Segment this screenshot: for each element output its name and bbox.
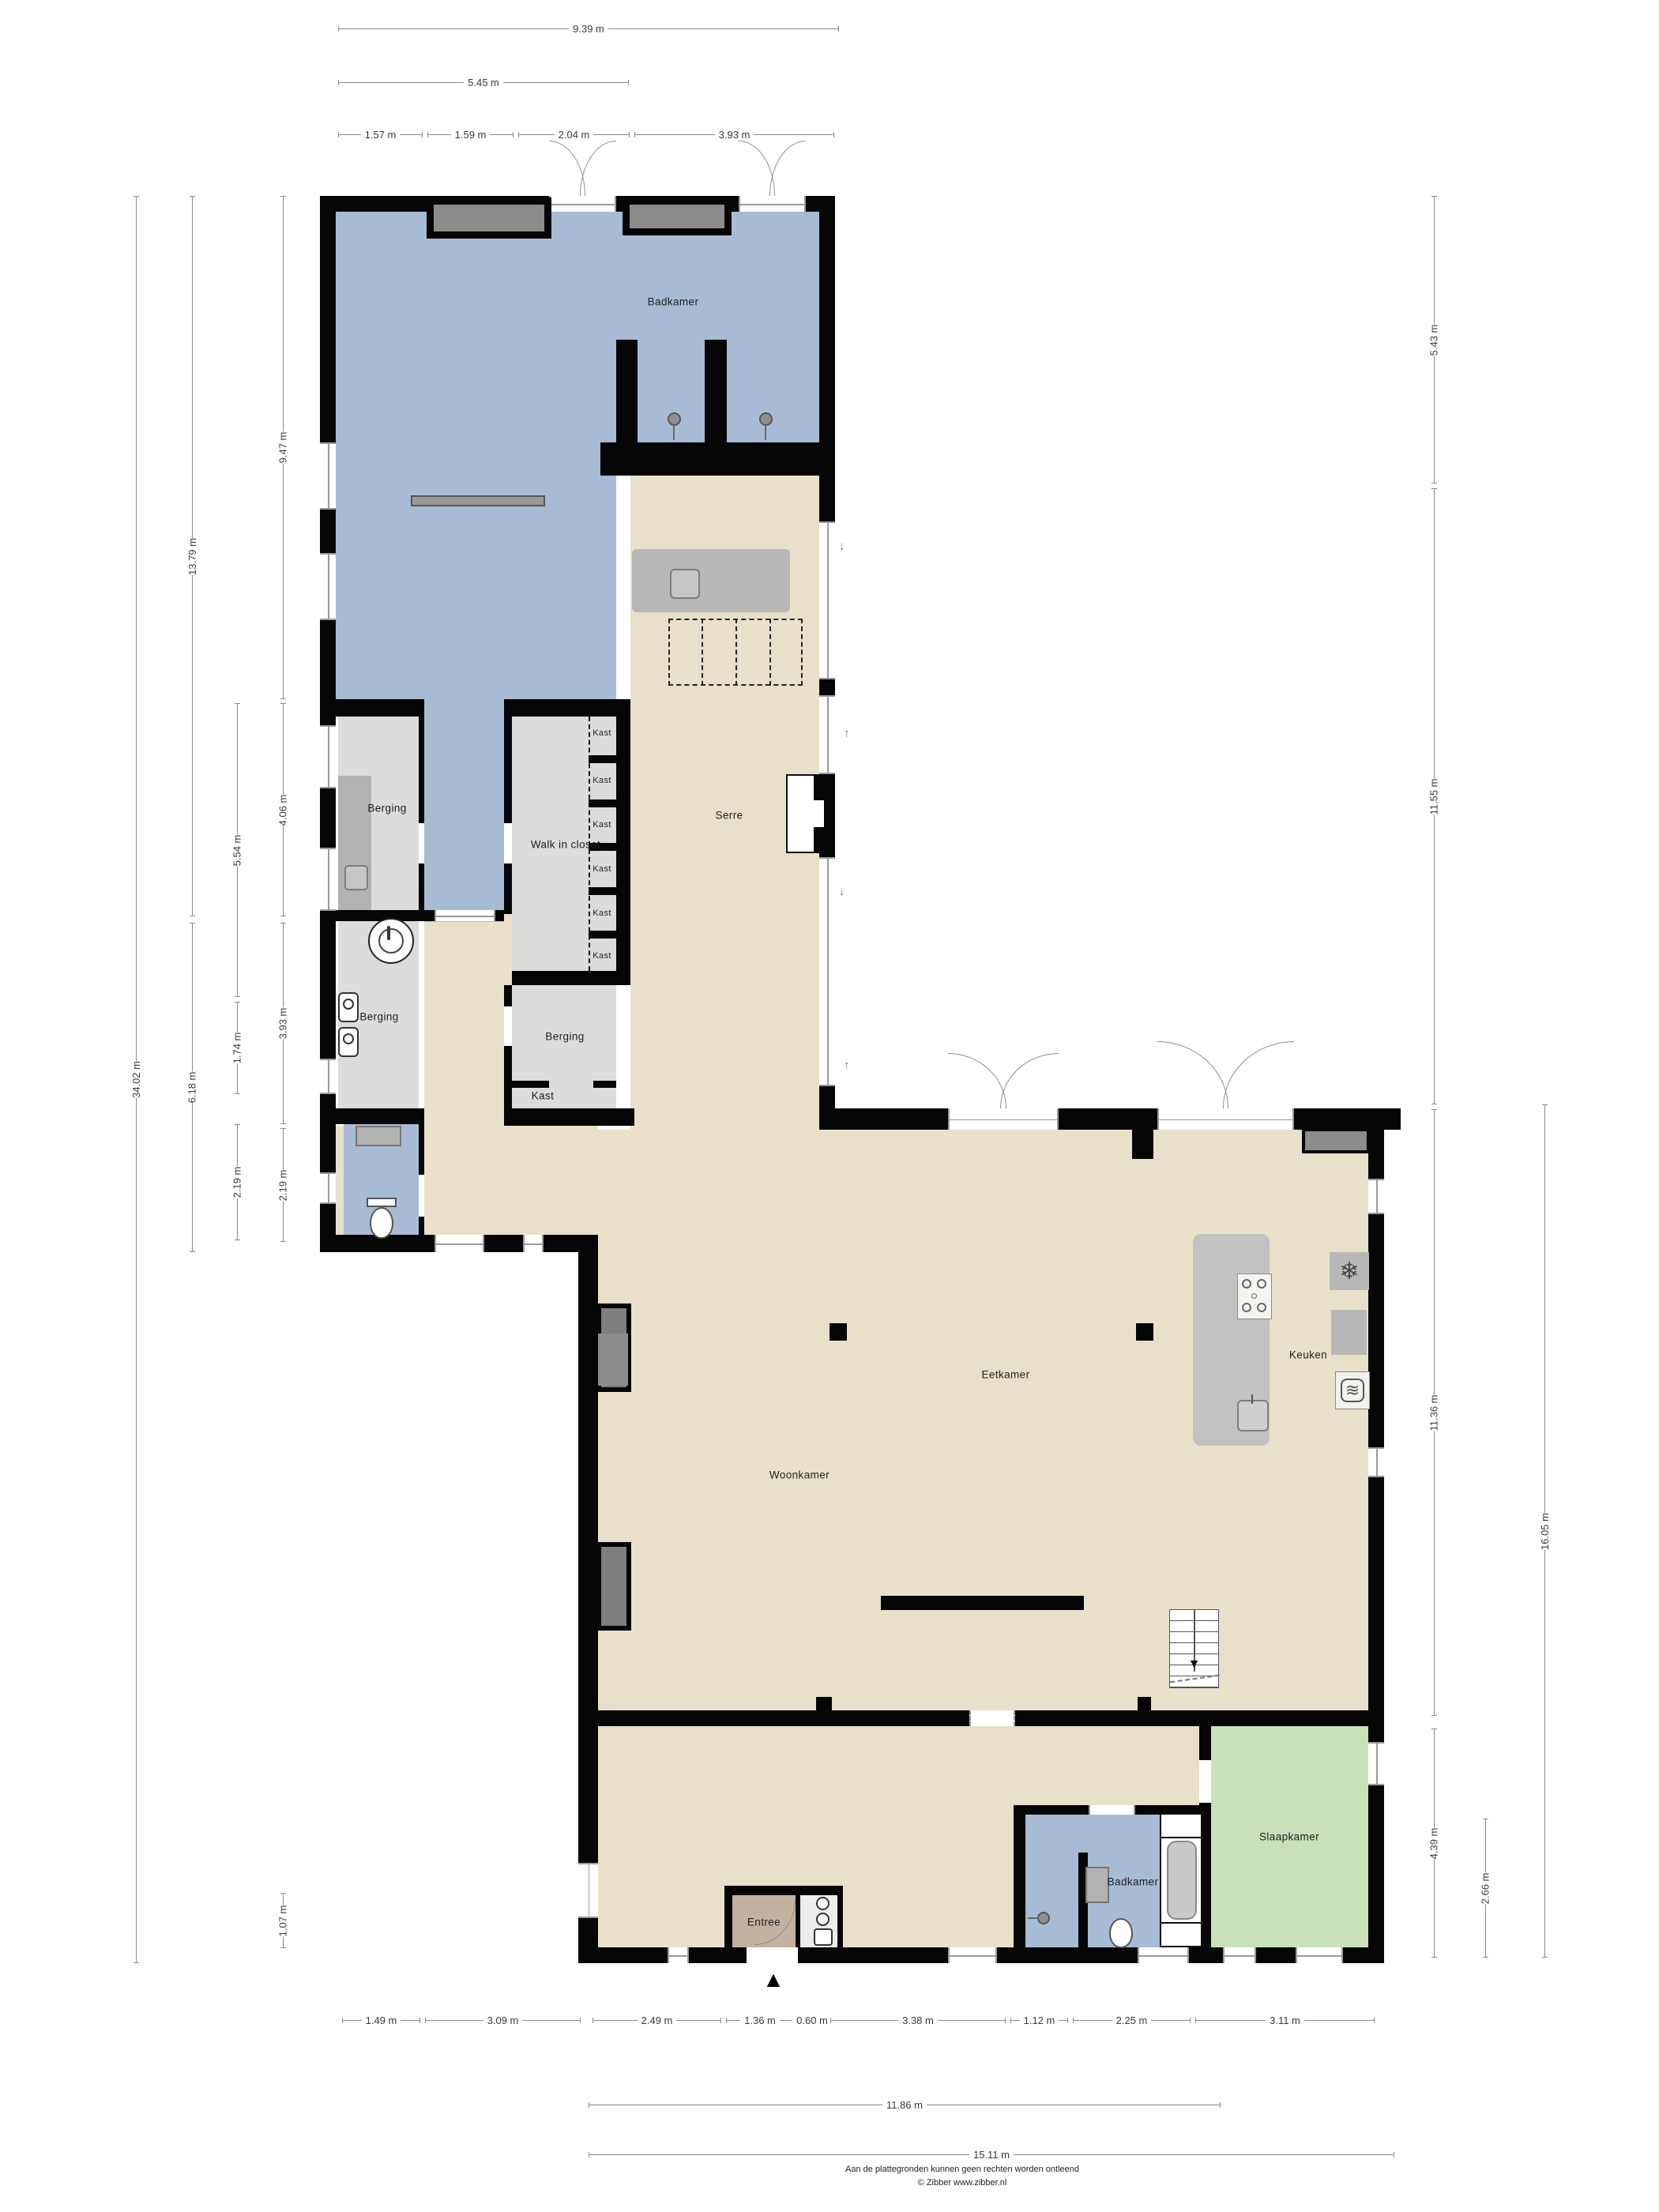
dimension-left: 1.74 m	[230, 1002, 244, 1094]
wall	[798, 1947, 948, 1963]
floor-badkamer-boven-b	[336, 449, 616, 701]
window-arrow-icon: ↑	[844, 727, 850, 740]
door-opening	[1089, 1805, 1135, 1815]
washer-drum-icon	[378, 928, 404, 954]
boiler-dial-icon	[343, 1033, 354, 1044]
snowflake-icon: ❄	[1339, 1258, 1359, 1285]
shower-head-icon	[1037, 1912, 1050, 1924]
side-entrance-step	[814, 774, 835, 800]
window-arrow-icon: ↓	[839, 885, 845, 898]
radiator	[411, 495, 545, 506]
wall	[504, 985, 512, 1006]
island-sink	[1237, 1400, 1269, 1431]
double-door-left-leaf	[948, 1053, 1006, 1108]
wall	[1368, 1214, 1384, 1447]
dimension-right: 11.55 m	[1427, 488, 1441, 1104]
passage-opening	[969, 1710, 1015, 1726]
double-door-right-leaf	[1000, 1053, 1059, 1108]
wall	[689, 1947, 747, 1963]
window	[1223, 1947, 1256, 1963]
window	[549, 196, 616, 212]
door-opening	[419, 1175, 424, 1217]
window	[1368, 1742, 1384, 1785]
washbasin	[355, 1126, 401, 1146]
double-door-right-leaf	[769, 141, 806, 196]
toilet-bowl-icon	[1109, 1918, 1133, 1948]
dimension-top: 2.04 m	[518, 127, 630, 141]
counter	[632, 549, 790, 612]
dimension-right: 5.43 m	[1427, 196, 1441, 483]
wall	[424, 910, 434, 921]
double-door-opening	[948, 1108, 1059, 1130]
dimension-left: 4.06 m	[276, 703, 290, 916]
wall-panel	[427, 197, 551, 239]
burner-icon	[1242, 1279, 1251, 1288]
double-door-right-leaf	[1223, 1041, 1294, 1108]
window	[523, 1235, 544, 1252]
wall	[504, 1108, 634, 1126]
wall	[593, 1081, 616, 1088]
floor-berging-midden	[512, 985, 616, 1108]
double-door-right-leaf	[580, 141, 616, 196]
wall	[320, 1108, 424, 1124]
wall	[600, 442, 835, 476]
room-label-eetkamer: Eetkamer	[982, 1369, 1030, 1381]
dimension-bottom: 1.12 m	[1010, 2013, 1068, 2027]
wall-pier	[1138, 1697, 1151, 1710]
side-entrance-step	[824, 800, 835, 827]
window	[1368, 1447, 1384, 1477]
floor-hall-upper	[424, 914, 512, 1127]
window	[320, 553, 336, 620]
shelf-label-kast: Kast	[592, 908, 611, 918]
dimension-bottom: 0.60 m	[799, 2013, 826, 2027]
wall	[1294, 1108, 1401, 1130]
window	[948, 1947, 997, 1963]
wall	[1199, 1725, 1211, 1760]
wall	[819, 1108, 948, 1130]
knob-icon	[1251, 1293, 1257, 1299]
floor-corridor	[424, 701, 504, 922]
double-door-opening	[1157, 1108, 1294, 1130]
window	[320, 1059, 336, 1094]
dimension-top: 1.57 m	[338, 127, 423, 141]
room-label-keuken: Keuken	[1289, 1349, 1327, 1361]
window	[320, 848, 336, 911]
dimension-right: 2.66 m	[1478, 1819, 1492, 1958]
wall	[1015, 1710, 1368, 1726]
dimension-bottom: 1.49 m	[342, 2013, 420, 2027]
stairs-arrow-icon: ▼	[1188, 1657, 1201, 1672]
window	[668, 1947, 689, 1963]
wall	[504, 717, 512, 823]
north-arrow-icon: ▲	[762, 1967, 784, 1992]
wall	[419, 1217, 424, 1236]
dimension-left: 34.02 m	[129, 196, 143, 1963]
shelf-label-kast: Kast	[592, 864, 611, 874]
dimension-bottom: 1.36 m	[726, 2013, 794, 2027]
toilet-icon	[367, 1198, 397, 1207]
wall	[320, 910, 424, 921]
shower-stem	[1028, 1917, 1039, 1919]
closet-shelf-divider	[589, 887, 616, 895]
burner-icon	[1242, 1303, 1251, 1312]
meter-icon	[816, 1913, 829, 1926]
wall-panel	[1302, 1128, 1370, 1153]
wall	[578, 1235, 598, 1863]
wall	[1059, 1108, 1157, 1130]
wall	[419, 1124, 424, 1175]
room-label-badkamer-boven: Badkamer	[648, 296, 699, 308]
meter-icon	[816, 1897, 829, 1910]
window	[819, 521, 835, 679]
closet-shelf-divider	[589, 931, 616, 939]
dimension-left: 2.19 m	[276, 1128, 290, 1242]
window	[434, 1235, 484, 1252]
footer-line-1: Aan de plattegronden kunnen geen rechten…	[845, 2163, 1079, 2176]
side-entrance-step	[814, 827, 835, 853]
door-opening	[504, 1006, 512, 1046]
wardrobe-divider	[769, 619, 771, 686]
burner-icon	[1257, 1279, 1266, 1288]
washer-knob	[387, 926, 390, 940]
dimension-left: 1.07 m	[276, 1893, 290, 1948]
wall	[504, 863, 512, 914]
dimension-top: 1.59 m	[427, 127, 513, 141]
dimension-left: 2.19 m	[230, 1124, 244, 1240]
wall	[616, 699, 630, 985]
bathtub-cabinet	[1160, 1922, 1202, 1947]
room-label-walk-in-closet: Walk in closet	[531, 839, 600, 851]
door-opening	[1199, 1760, 1211, 1803]
wall	[512, 971, 630, 985]
wall	[544, 1235, 581, 1252]
washbasin	[1085, 1867, 1109, 1903]
sliding-door	[434, 910, 495, 921]
wall	[1132, 1130, 1153, 1159]
wall-panel	[598, 1334, 628, 1386]
closet-shelf-divider	[589, 799, 616, 807]
window	[320, 442, 336, 510]
shower-head-icon	[668, 412, 681, 426]
wall-panel	[596, 1542, 631, 1631]
dimension-right: 16.05 m	[1537, 1104, 1552, 1958]
room-label-berging-onder: Berging	[359, 1011, 398, 1023]
floor-badkamer-boven-a	[336, 212, 819, 449]
dimension-bottom: 3.09 m	[425, 2013, 581, 2027]
dimension-left: 13.79 m	[185, 196, 199, 916]
dimension-bottom: 2.25 m	[1073, 2013, 1191, 2027]
room-label-badkamer-beneden: Badkamer	[1108, 1876, 1159, 1888]
wall-panel	[623, 197, 732, 235]
wall	[1014, 1805, 1089, 1815]
dimension-right: 4.39 m	[1427, 1729, 1441, 1958]
wall	[419, 863, 424, 914]
dimension-left: 9.47 m	[276, 196, 290, 699]
wall	[724, 1886, 843, 1895]
room-label-serre: Serre	[715, 810, 743, 822]
wall	[598, 1710, 969, 1726]
wall	[616, 340, 638, 446]
stairs-icon: ▼	[1169, 1609, 1219, 1688]
double-door-left-leaf	[1157, 1041, 1228, 1108]
shower-stem	[673, 426, 675, 440]
wall	[837, 1895, 843, 1947]
sink	[344, 865, 368, 890]
wall	[495, 910, 504, 921]
wardrobe-divider	[735, 619, 737, 686]
window-arrow-icon: ↑	[844, 1059, 850, 1072]
faucet	[1251, 1394, 1253, 1404]
wall	[796, 1895, 800, 1947]
wall	[1343, 1947, 1384, 1963]
wall	[724, 1895, 732, 1947]
room-label-entree: Entree	[747, 1917, 781, 1928]
wall	[1014, 1815, 1025, 1947]
wall	[320, 699, 424, 717]
closet-shelf-divider	[589, 755, 616, 763]
shelf-label-kast: Kast	[592, 728, 611, 738]
shower-head-icon	[759, 412, 773, 426]
window	[320, 1172, 336, 1204]
dimension-left: 5.54 m	[230, 703, 244, 997]
pillar	[829, 1323, 847, 1341]
dimension-bottom: 3.11 m	[1195, 2013, 1375, 2027]
wall	[484, 1235, 523, 1252]
window	[819, 695, 835, 774]
wall	[578, 1947, 668, 1963]
front-door-opening	[747, 1947, 798, 1963]
window-arrow-icon: ↓	[839, 540, 845, 553]
dimension-left: 3.93 m	[276, 923, 290, 1124]
wall	[705, 340, 727, 446]
wall	[1368, 1785, 1384, 1963]
stove-icon	[1237, 1273, 1272, 1319]
wall-pier	[816, 1697, 832, 1710]
wall	[504, 699, 630, 717]
wardrobe-divider	[702, 619, 703, 686]
room-label-woonkamer: Woonkamer	[769, 1469, 829, 1481]
pillar	[1136, 1323, 1153, 1341]
dimension-top: 5.45 m	[338, 75, 629, 89]
shelf-label-kast: Kast	[592, 820, 611, 829]
floor-plan-canvas: ❄ ≋ ▼ ↓ ↑ ↓ ↑ ▲ Badkamer Berging Walk in…	[0, 0, 1659, 2212]
dimension-bottom: 11.86 m	[589, 2097, 1221, 2112]
toilet-bowl-icon	[370, 1207, 393, 1239]
footer-line-2: © Zibber www.zibber.nl	[845, 2176, 1079, 2190]
bathtub-basin	[1167, 1841, 1197, 1920]
wall	[1256, 1947, 1296, 1963]
footer-disclaimer: Aan de plattegronden kunnen geen rechten…	[845, 2163, 1079, 2189]
dimension-top: 9.39 m	[338, 21, 839, 36]
sink	[670, 569, 700, 599]
dimension-top: 3.93 m	[634, 127, 834, 141]
window	[739, 196, 806, 212]
dimension-bottom: 15.11 m	[589, 2147, 1394, 2161]
dimension-bottom: 2.49 m	[592, 2013, 721, 2027]
dimension-bottom: 3.38 m	[830, 2013, 1006, 2027]
shelf-label-kast: Kast	[592, 776, 611, 785]
stairs-cut-line	[1170, 1675, 1220, 1683]
room-label-berging-boven: Berging	[367, 803, 406, 814]
dimension-left: 6.18 m	[185, 923, 199, 1252]
burner-icon	[1257, 1303, 1266, 1312]
window	[819, 857, 835, 1086]
fridge-icon: ❄	[1330, 1252, 1369, 1290]
door-opening	[504, 823, 512, 863]
room-label-kast: Kast	[532, 1090, 555, 1102]
meter-box-icon	[814, 1928, 833, 1946]
oven-icon: ≋	[1335, 1371, 1370, 1409]
dimension-right: 11.36 m	[1427, 1109, 1441, 1716]
room-label-slaapkamer: Slaapkamer	[1259, 1831, 1319, 1843]
door-opening	[419, 823, 424, 863]
window	[1138, 1947, 1189, 1963]
wall	[1368, 1477, 1384, 1742]
wall	[512, 1081, 549, 1088]
kitchen-cabinet	[1331, 1310, 1367, 1355]
wall	[419, 717, 424, 823]
oven-waves-icon: ≋	[1341, 1379, 1364, 1402]
window	[320, 725, 336, 788]
shower-stem	[765, 426, 766, 440]
shelf-label-kast: Kast	[592, 951, 611, 961]
window	[1296, 1947, 1343, 1963]
freestanding-wall	[881, 1596, 1084, 1610]
wall	[1189, 1947, 1223, 1963]
window	[578, 1863, 598, 1918]
room-label-berging-midden: Berging	[545, 1031, 584, 1043]
window	[1368, 1179, 1384, 1214]
wall	[997, 1947, 1138, 1963]
bathtub-cabinet	[1160, 1813, 1202, 1838]
boiler-dial-icon	[343, 999, 354, 1010]
wall	[1368, 1108, 1384, 1179]
